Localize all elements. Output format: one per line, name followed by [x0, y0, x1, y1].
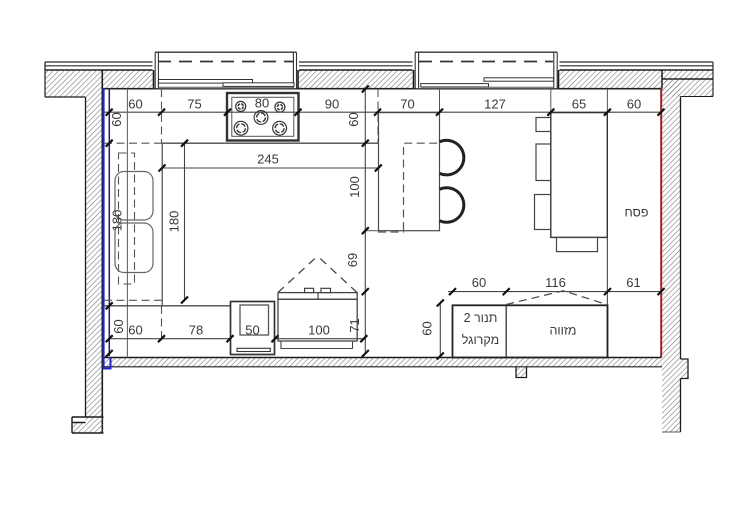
svg-text:78: 78: [189, 322, 203, 337]
svg-text:60: 60: [111, 319, 126, 333]
svg-text:60: 60: [627, 97, 641, 112]
svg-text:245: 245: [257, 152, 279, 167]
svg-text:180: 180: [167, 211, 182, 233]
svg-text:60: 60: [420, 321, 435, 335]
svg-text:70: 70: [400, 97, 414, 112]
svg-text:69: 69: [345, 253, 360, 267]
svg-text:60: 60: [128, 97, 142, 112]
svg-text:100: 100: [347, 176, 362, 198]
svg-text:127: 127: [484, 97, 506, 112]
svg-text:71: 71: [347, 318, 362, 332]
svg-text:80: 80: [255, 96, 269, 111]
svg-text:60: 60: [346, 112, 361, 126]
svg-text:90: 90: [325, 97, 339, 112]
svg-text:60: 60: [472, 275, 486, 290]
svg-text:100: 100: [308, 322, 330, 337]
svg-text:65: 65: [572, 97, 586, 112]
svg-text:50: 50: [245, 322, 259, 337]
svg-text:60: 60: [128, 322, 142, 337]
svg-text:פסח: פסח: [625, 206, 649, 220]
svg-text:116: 116: [545, 275, 566, 290]
svg-text:תנור 2: תנור 2: [464, 311, 498, 325]
svg-text:75: 75: [187, 97, 201, 112]
svg-text:מקרוגל: מקרוגל: [462, 333, 499, 347]
svg-text:60: 60: [109, 112, 124, 126]
svg-text:מזווה: מזווה: [549, 324, 576, 338]
svg-text:61: 61: [626, 275, 640, 290]
svg-text:180: 180: [110, 210, 125, 232]
